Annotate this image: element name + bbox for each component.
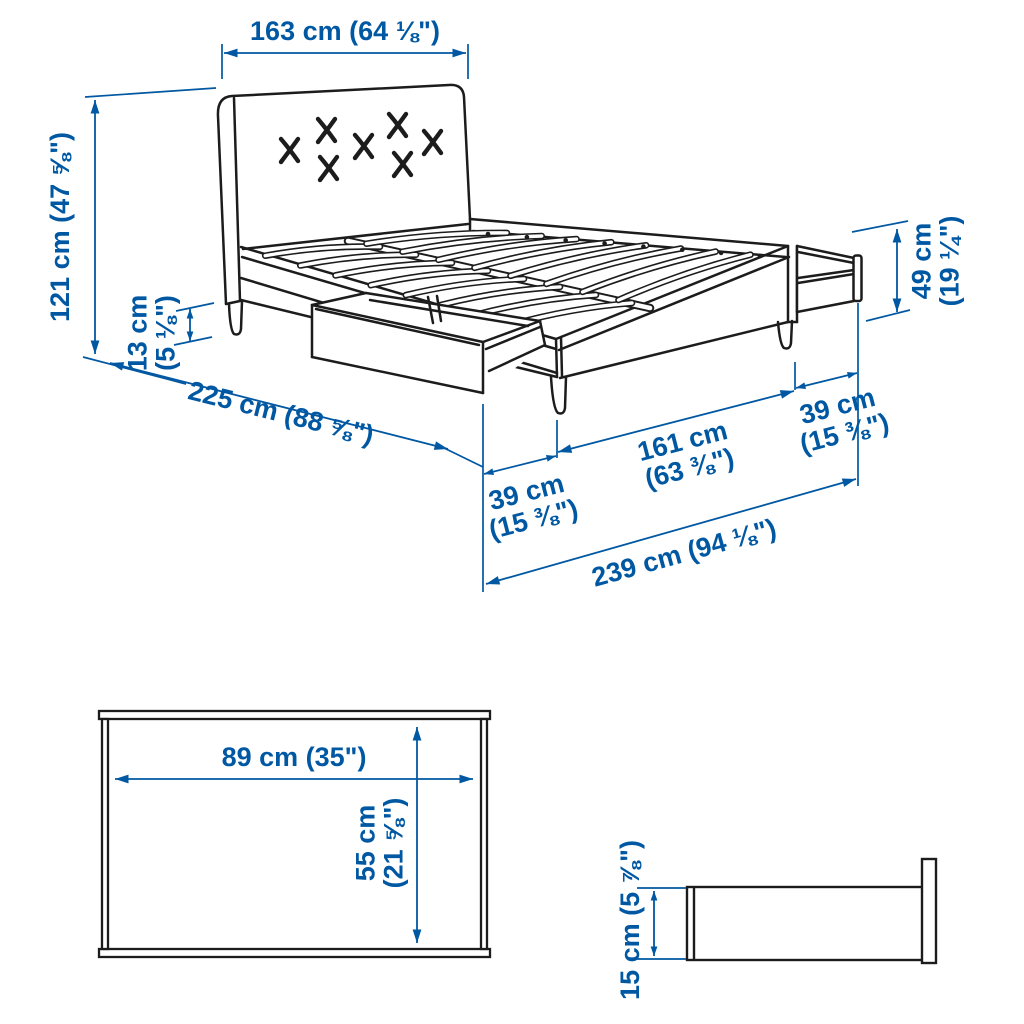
headboard-leg <box>229 301 242 334</box>
dim-line2: (19 ¼") <box>936 216 964 307</box>
dim-line2: (21 ⅝") <box>380 798 408 889</box>
dim-label-drawer-side-height: 15 cm (5 ⅞") <box>616 840 644 1000</box>
dim-line1: 13 cm <box>124 295 152 372</box>
dim-label-drawer-width: 89 cm (35") <box>222 743 367 771</box>
dim-label-drawer-height: 49 cm (19 ¼") <box>908 216 965 307</box>
foot-drawer-open <box>797 246 864 312</box>
tufting-x-marks <box>281 114 441 180</box>
drawer-side-view-art <box>687 859 936 963</box>
bed-isometric-drawing <box>218 85 864 414</box>
dim-label-bed-height: 121 cm (47 ⅝") <box>46 132 74 322</box>
dim-line1: 49 cm <box>908 216 936 307</box>
dim-label-headboard-width: 163 cm (64 ⅛") <box>250 17 440 45</box>
dim-label-floor-clearance: 13 cm (5 ⅛") <box>124 295 181 372</box>
dim-line1: 55 cm <box>352 798 380 889</box>
front-leg <box>551 377 566 413</box>
dim-label-drawer-depth: 55 cm (21 ⅝") <box>352 798 409 889</box>
dim-line2: (5 ⅛") <box>152 295 180 372</box>
dimension-diagram-canvas: 163 cm (64 ⅛") 121 cm (47 ⅝") 13 cm (5 ⅛… <box>0 0 1024 1024</box>
